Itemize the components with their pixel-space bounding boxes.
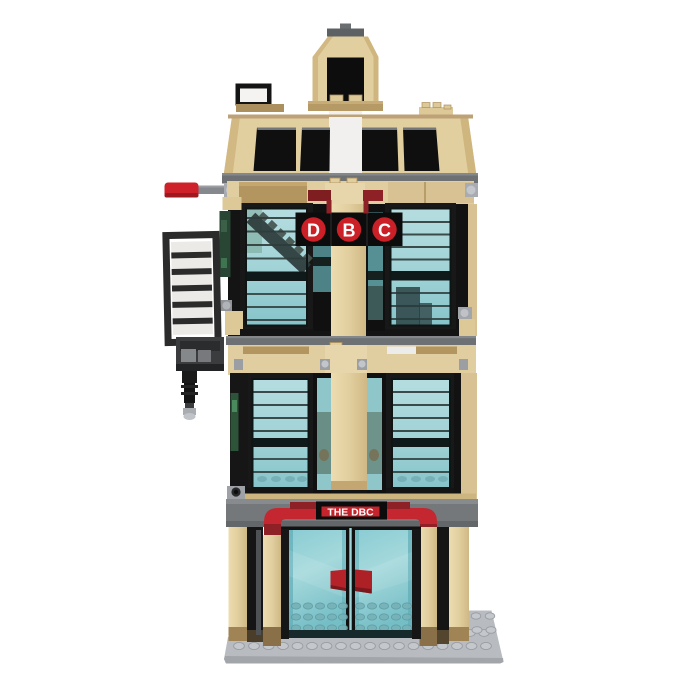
svg-text:D: D [307,221,320,241]
svg-text:THE DBC: THE DBC [327,508,374,519]
svg-text:B: B [343,221,356,241]
svg-text:C: C [378,221,391,241]
